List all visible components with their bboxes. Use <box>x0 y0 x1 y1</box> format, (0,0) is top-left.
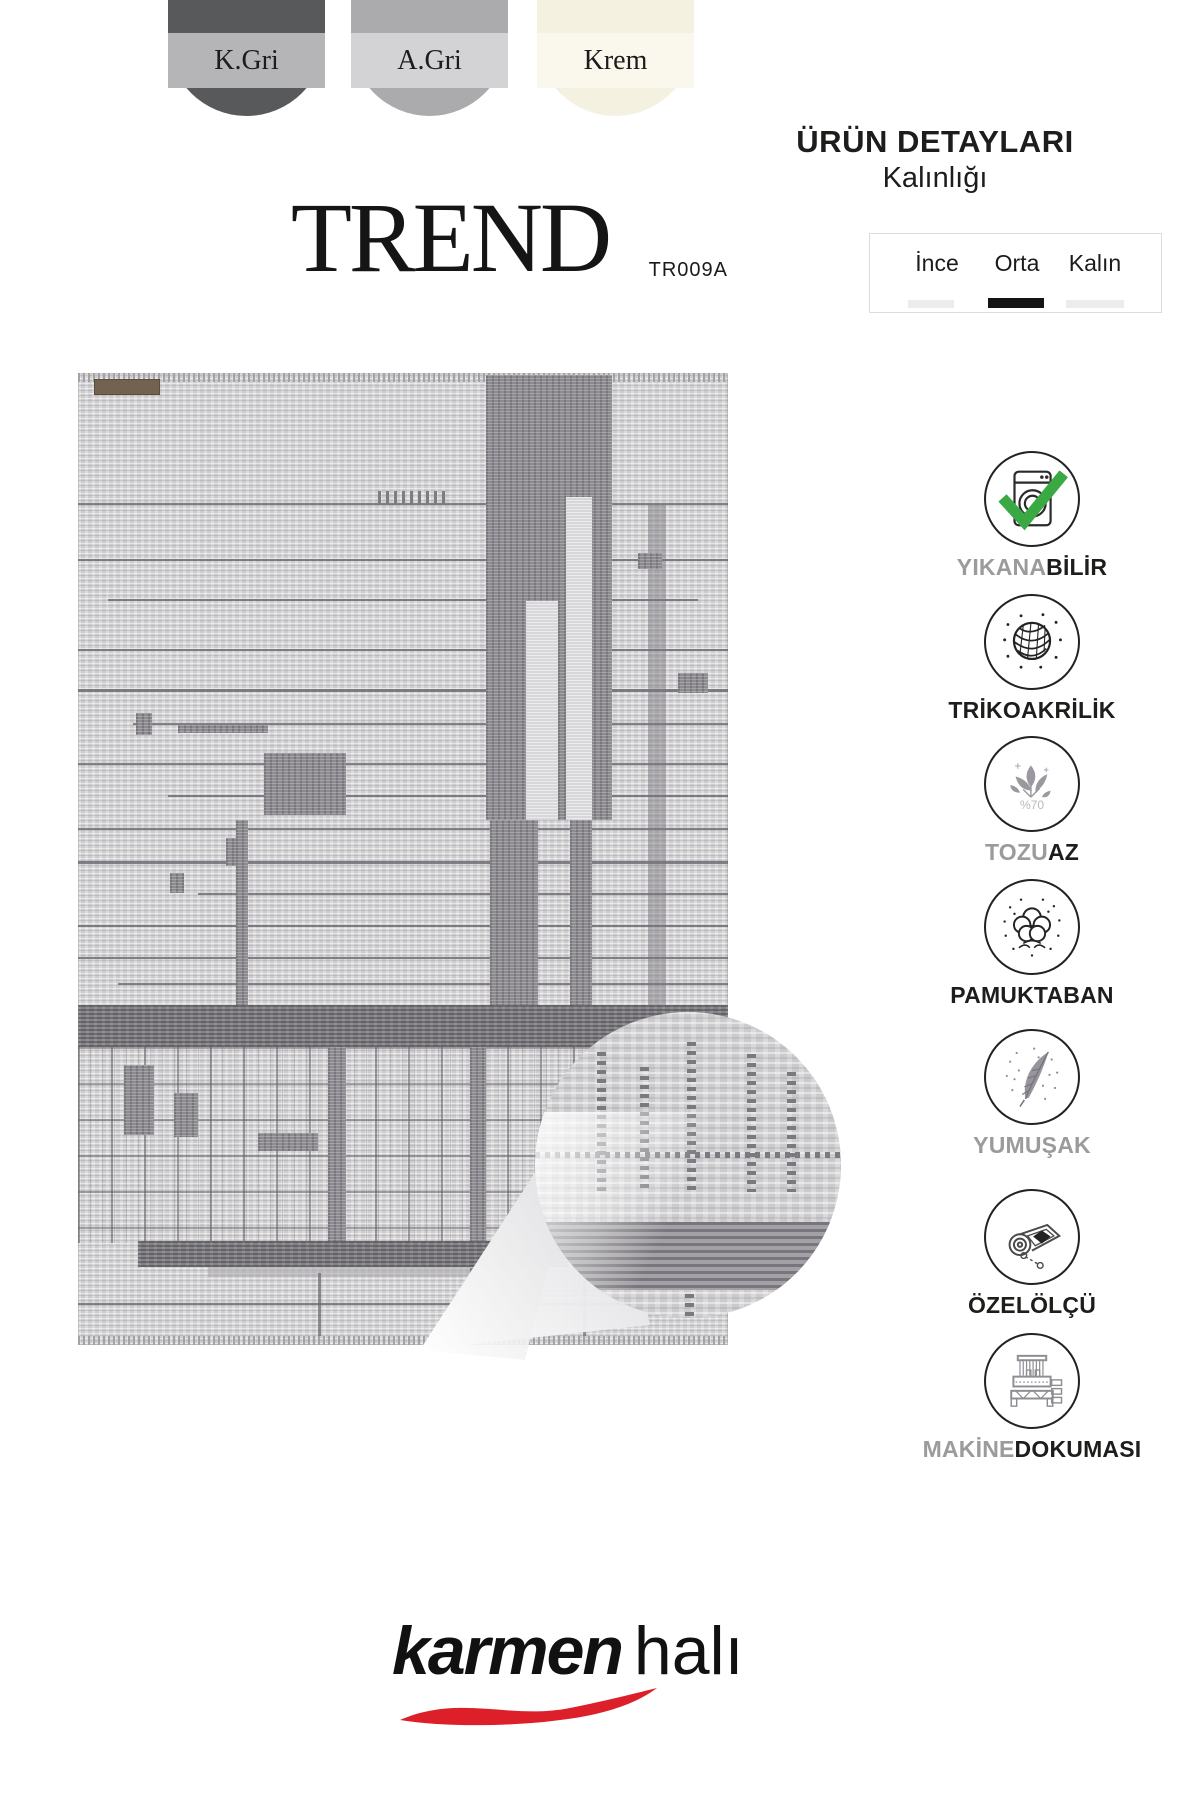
feature-custom-size: ÖZELÖLÇÜ <box>937 1189 1127 1319</box>
feature-label: YUMUŞAK <box>973 1132 1091 1159</box>
product-code: TR009A <box>649 259 728 282</box>
feature-cotton-base: PAMUKTABAN <box>937 879 1127 1009</box>
rolled-rug-icon <box>984 1189 1080 1285</box>
feather-icon <box>984 1029 1080 1125</box>
feature-label: YIKANABİLİR <box>957 554 1107 581</box>
feature-less-dust: %70 TOZUAZ <box>937 736 1127 866</box>
rug-brand-tag <box>94 379 160 395</box>
thickness-option-kalin[interactable]: Kalın <box>1069 250 1121 277</box>
thickness-bar-kalin[interactable] <box>1066 300 1124 308</box>
svg-text:%70: %70 <box>1020 798 1044 812</box>
swatch-label: Krem <box>584 45 648 77</box>
brand-logo: karmenhalı <box>392 1612 812 1690</box>
feature-soft: YUMUŞAK <box>937 1029 1127 1159</box>
feature-label: PAMUKTABAN <box>950 982 1113 1009</box>
feature-label: TOZUAZ <box>985 839 1079 866</box>
color-swatch-krem[interactable]: Krem <box>537 0 694 116</box>
zoom-detail-circle <box>535 1012 841 1318</box>
thickness-bar-ince[interactable] <box>908 300 954 308</box>
color-swatch-agri[interactable]: A.Gri <box>351 0 508 116</box>
loom-icon <box>984 1333 1080 1429</box>
thickness-selector: İnce Orta Kalın <box>869 233 1162 313</box>
product-sheet: K.Gri A.Gri Krem TREND TR009A ÜRÜN DETAY… <box>0 0 1200 1800</box>
swatch-label: K.Gri <box>214 45 279 77</box>
thickness-option-ince[interactable]: İnce <box>915 250 958 277</box>
brand-name-light: halı <box>634 1613 744 1689</box>
feature-machine-woven: MAKİNEDOKUMASI <box>937 1333 1127 1463</box>
product-title: TREND TR009A <box>250 188 650 288</box>
details-heading: ÜRÜN DETAYLARI <box>755 124 1115 160</box>
feature-washable: YIKANABİLİR <box>937 451 1127 581</box>
yarn-ball-icon <box>984 594 1080 690</box>
feature-label: ÖZELÖLÇÜ <box>968 1292 1096 1319</box>
thickness-bar-orta-selected[interactable] <box>988 298 1044 308</box>
feature-label: MAKİNEDOKUMASI <box>923 1436 1142 1463</box>
brand-swoosh <box>400 1686 658 1726</box>
swatch-label: A.Gri <box>397 45 462 77</box>
collection-name: TREND <box>291 182 609 293</box>
brand-name-bold: karmen <box>392 1613 622 1689</box>
thickness-heading: Kalınlığı <box>755 162 1115 195</box>
leaves-icon: %70 <box>984 736 1080 832</box>
thickness-option-orta[interactable]: Orta <box>995 250 1040 277</box>
feature-tricot-acrylic: TRİKOAKRİLİK <box>937 594 1127 724</box>
color-swatch-kgri[interactable]: K.Gri <box>168 0 325 116</box>
washing-machine-icon <box>984 451 1080 547</box>
cotton-icon <box>984 879 1080 975</box>
feature-label: TRİKOAKRİLİK <box>948 697 1115 724</box>
